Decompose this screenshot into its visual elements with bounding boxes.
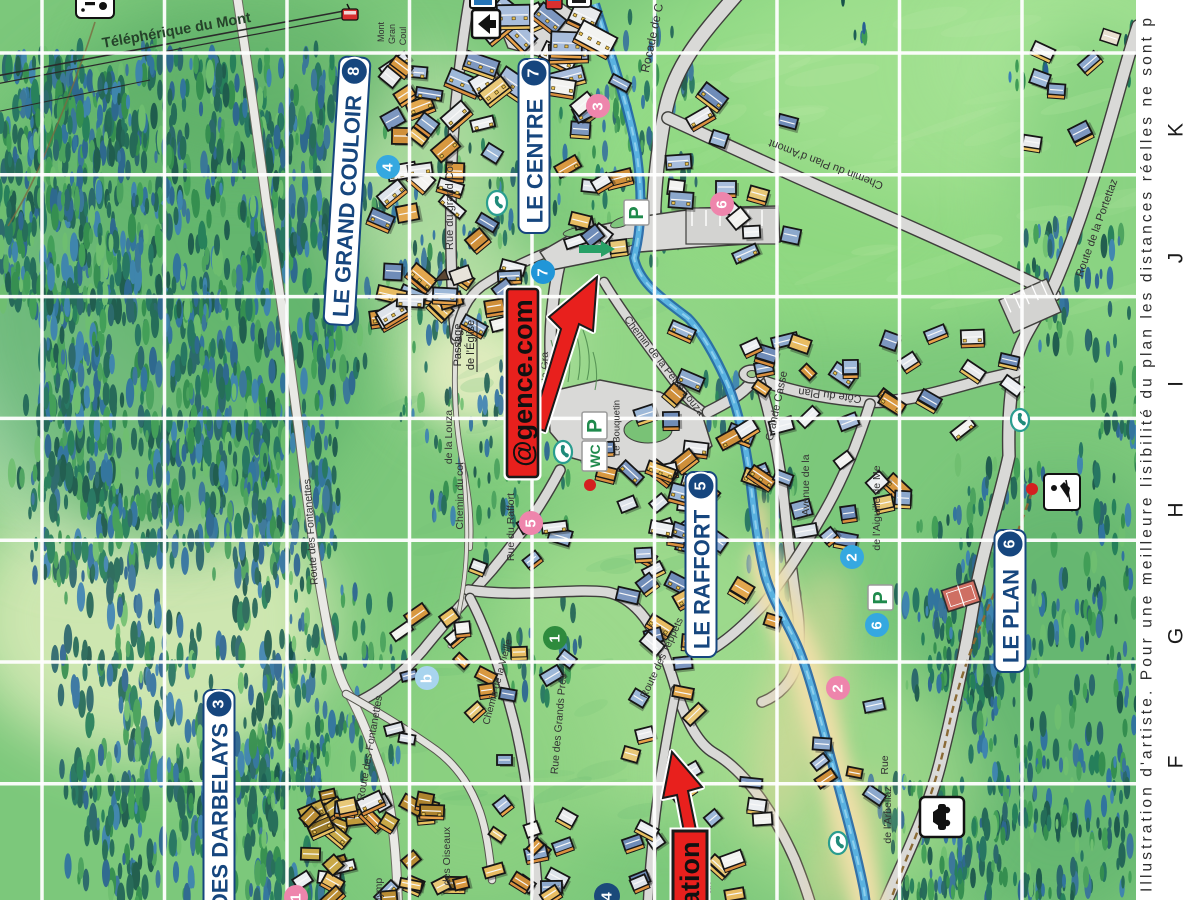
svg-text:Mont: Mont — [376, 22, 386, 43]
svg-text:de l’Arbellaz: de l’Arbellaz — [882, 786, 894, 843]
svg-text:de l’Église: de l’Église — [464, 320, 477, 370]
svg-text:Rue du grand Cou: Rue du grand Cou — [444, 160, 456, 250]
svg-text:de l’Aiguille de Me: de l’Aiguille de Me — [871, 465, 883, 550]
svg-text:Rue: Rue — [879, 755, 891, 774]
svg-text:Olymp: Olymp — [373, 878, 385, 900]
svg-text:P: P — [626, 206, 648, 219]
svg-text:Avenue de la: Avenue de la — [800, 454, 812, 515]
svg-text:de la Louza: de la Louza — [443, 410, 455, 464]
svg-text:Coul: Coul — [398, 27, 408, 46]
svg-text:Gran: Gran — [387, 24, 397, 44]
svg-text:des Oiseaux: des Oiseaux — [441, 826, 453, 885]
svg-text:P: P — [584, 419, 607, 433]
svg-text:WC: WC — [587, 444, 603, 467]
svg-text:Passage: Passage — [452, 324, 464, 367]
svg-text:Chemin du col: Chemin du col — [454, 462, 466, 529]
svg-text:P: P — [870, 591, 892, 604]
svg-text:Le Bouquetin: Le Bouquetin — [612, 400, 623, 456]
svg-text:Rue du Raffort: Rue du Raffort — [505, 493, 517, 561]
